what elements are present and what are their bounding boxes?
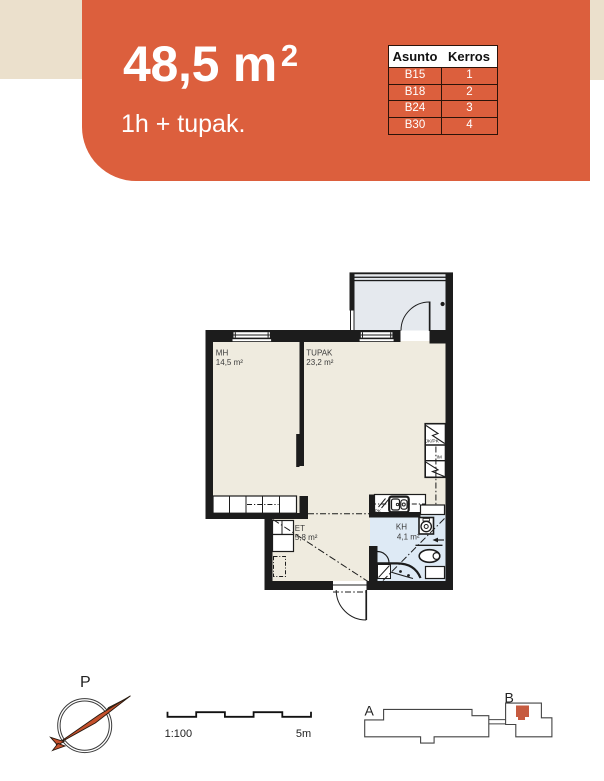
svg-text:KH: KH <box>396 522 407 531</box>
svg-text:JK/PK: JK/PK <box>426 439 440 445</box>
svg-text:14,5 m²: 14,5 m² <box>216 358 243 367</box>
svg-text:A: A <box>365 703 375 719</box>
svg-text:P: P <box>80 674 91 691</box>
svg-text:TUPAK: TUPAK <box>306 349 333 358</box>
svg-text:23,2 m²: 23,2 m² <box>306 358 333 367</box>
svg-text:ET: ET <box>295 524 305 533</box>
svg-text:1:100: 1:100 <box>165 728 193 740</box>
svg-text:B: B <box>505 690 514 706</box>
svg-text:5,8 m²: 5,8 m² <box>295 533 318 542</box>
svg-text:5m: 5m <box>296 728 311 740</box>
svg-text:IM: IM <box>437 454 442 460</box>
svg-text:4,1 m²: 4,1 m² <box>397 532 420 541</box>
svg-text:MH: MH <box>216 349 229 358</box>
